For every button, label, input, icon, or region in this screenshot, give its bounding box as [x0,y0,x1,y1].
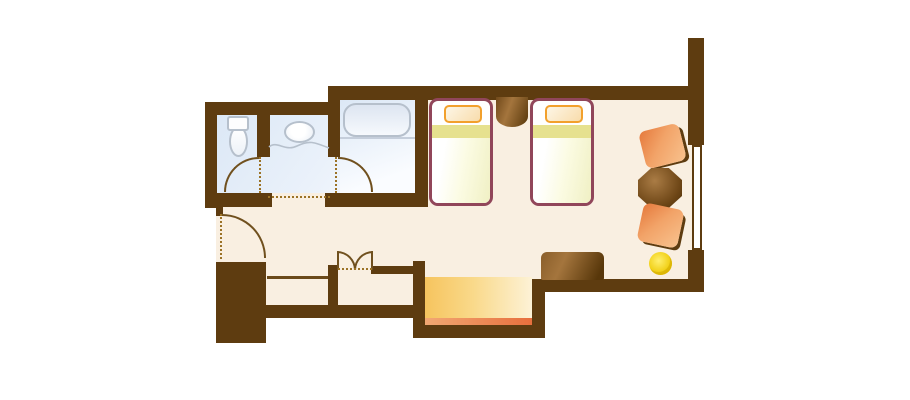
wall-divider-bath [328,100,340,157]
wall-bathroom-bottom-right [325,193,420,207]
bed-cover [533,138,591,203]
bathroom-door-leaf-dotted [335,157,337,193]
twin-bed-1 [429,98,493,206]
toilet-tank-icon [227,116,249,131]
twin-bed-2 [530,98,594,206]
wall-bathroom-bottom-left [205,193,272,207]
wall-alcove-bottom [266,305,425,318]
wall-right-upper [688,38,704,145]
alcove-floor [266,280,430,306]
bed-cover [432,138,490,203]
pillow-icon [545,105,583,123]
washroom-doorway-dotted [268,196,330,198]
wall-genkan-right [532,279,545,338]
washbasin-icon [284,121,315,143]
wall-closet-divider [328,265,338,305]
pillow-icon [444,105,482,123]
wall-divider-bedroom [415,100,428,207]
blanket-band [533,125,591,138]
wall-entry-block [216,262,266,343]
floor-lamp [649,252,672,275]
wall-closet-bar [371,266,417,274]
nightstand [496,97,528,127]
alcove-counter-line [267,276,328,279]
closet-opening-dotted [338,268,372,270]
window [692,145,702,250]
wall-bottom-right [532,279,704,292]
wall-divider-toilet [257,115,270,157]
toilet-door-leaf-dotted [259,157,261,193]
tv-board [541,252,604,280]
armchair-2 [636,202,684,249]
wall-genkan-bottom [413,325,545,338]
entrance-genkan-floor [425,277,532,318]
bathtub-icon [343,103,411,137]
blanket-band [432,125,490,138]
floor-plan [0,0,910,400]
wall-top-bathroom [205,102,340,115]
bathtub-deck-line [340,137,415,139]
entry-door-leaf-dotted [220,214,222,259]
